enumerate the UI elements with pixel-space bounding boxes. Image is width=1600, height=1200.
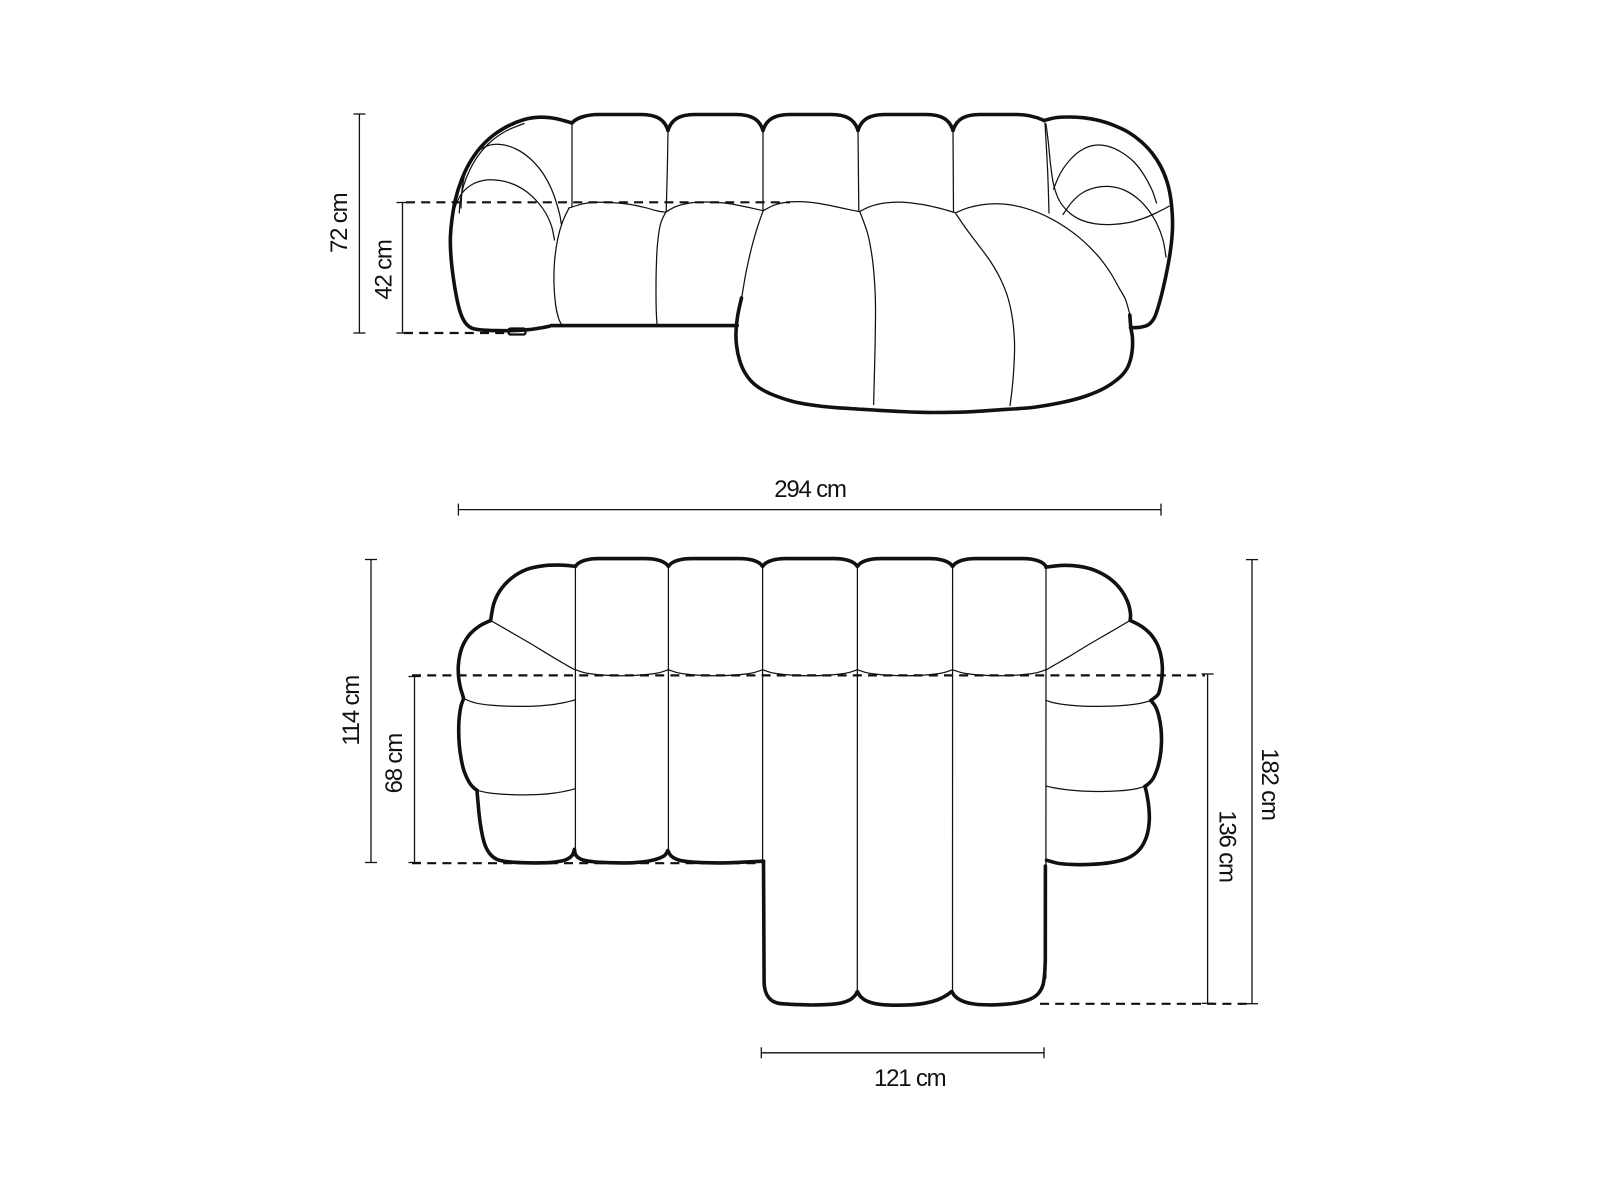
svg-text:114 cm: 114 cm [338, 676, 365, 746]
svg-text:72 cm: 72 cm [326, 193, 353, 253]
svg-text:136 cm: 136 cm [1214, 810, 1241, 882]
svg-text:121 cm: 121 cm [874, 1065, 946, 1092]
svg-text:42 cm: 42 cm [371, 240, 398, 300]
svg-text:182 cm: 182 cm [1256, 748, 1283, 820]
svg-text:68 cm: 68 cm [381, 734, 408, 794]
svg-text:294 cm: 294 cm [774, 476, 846, 503]
